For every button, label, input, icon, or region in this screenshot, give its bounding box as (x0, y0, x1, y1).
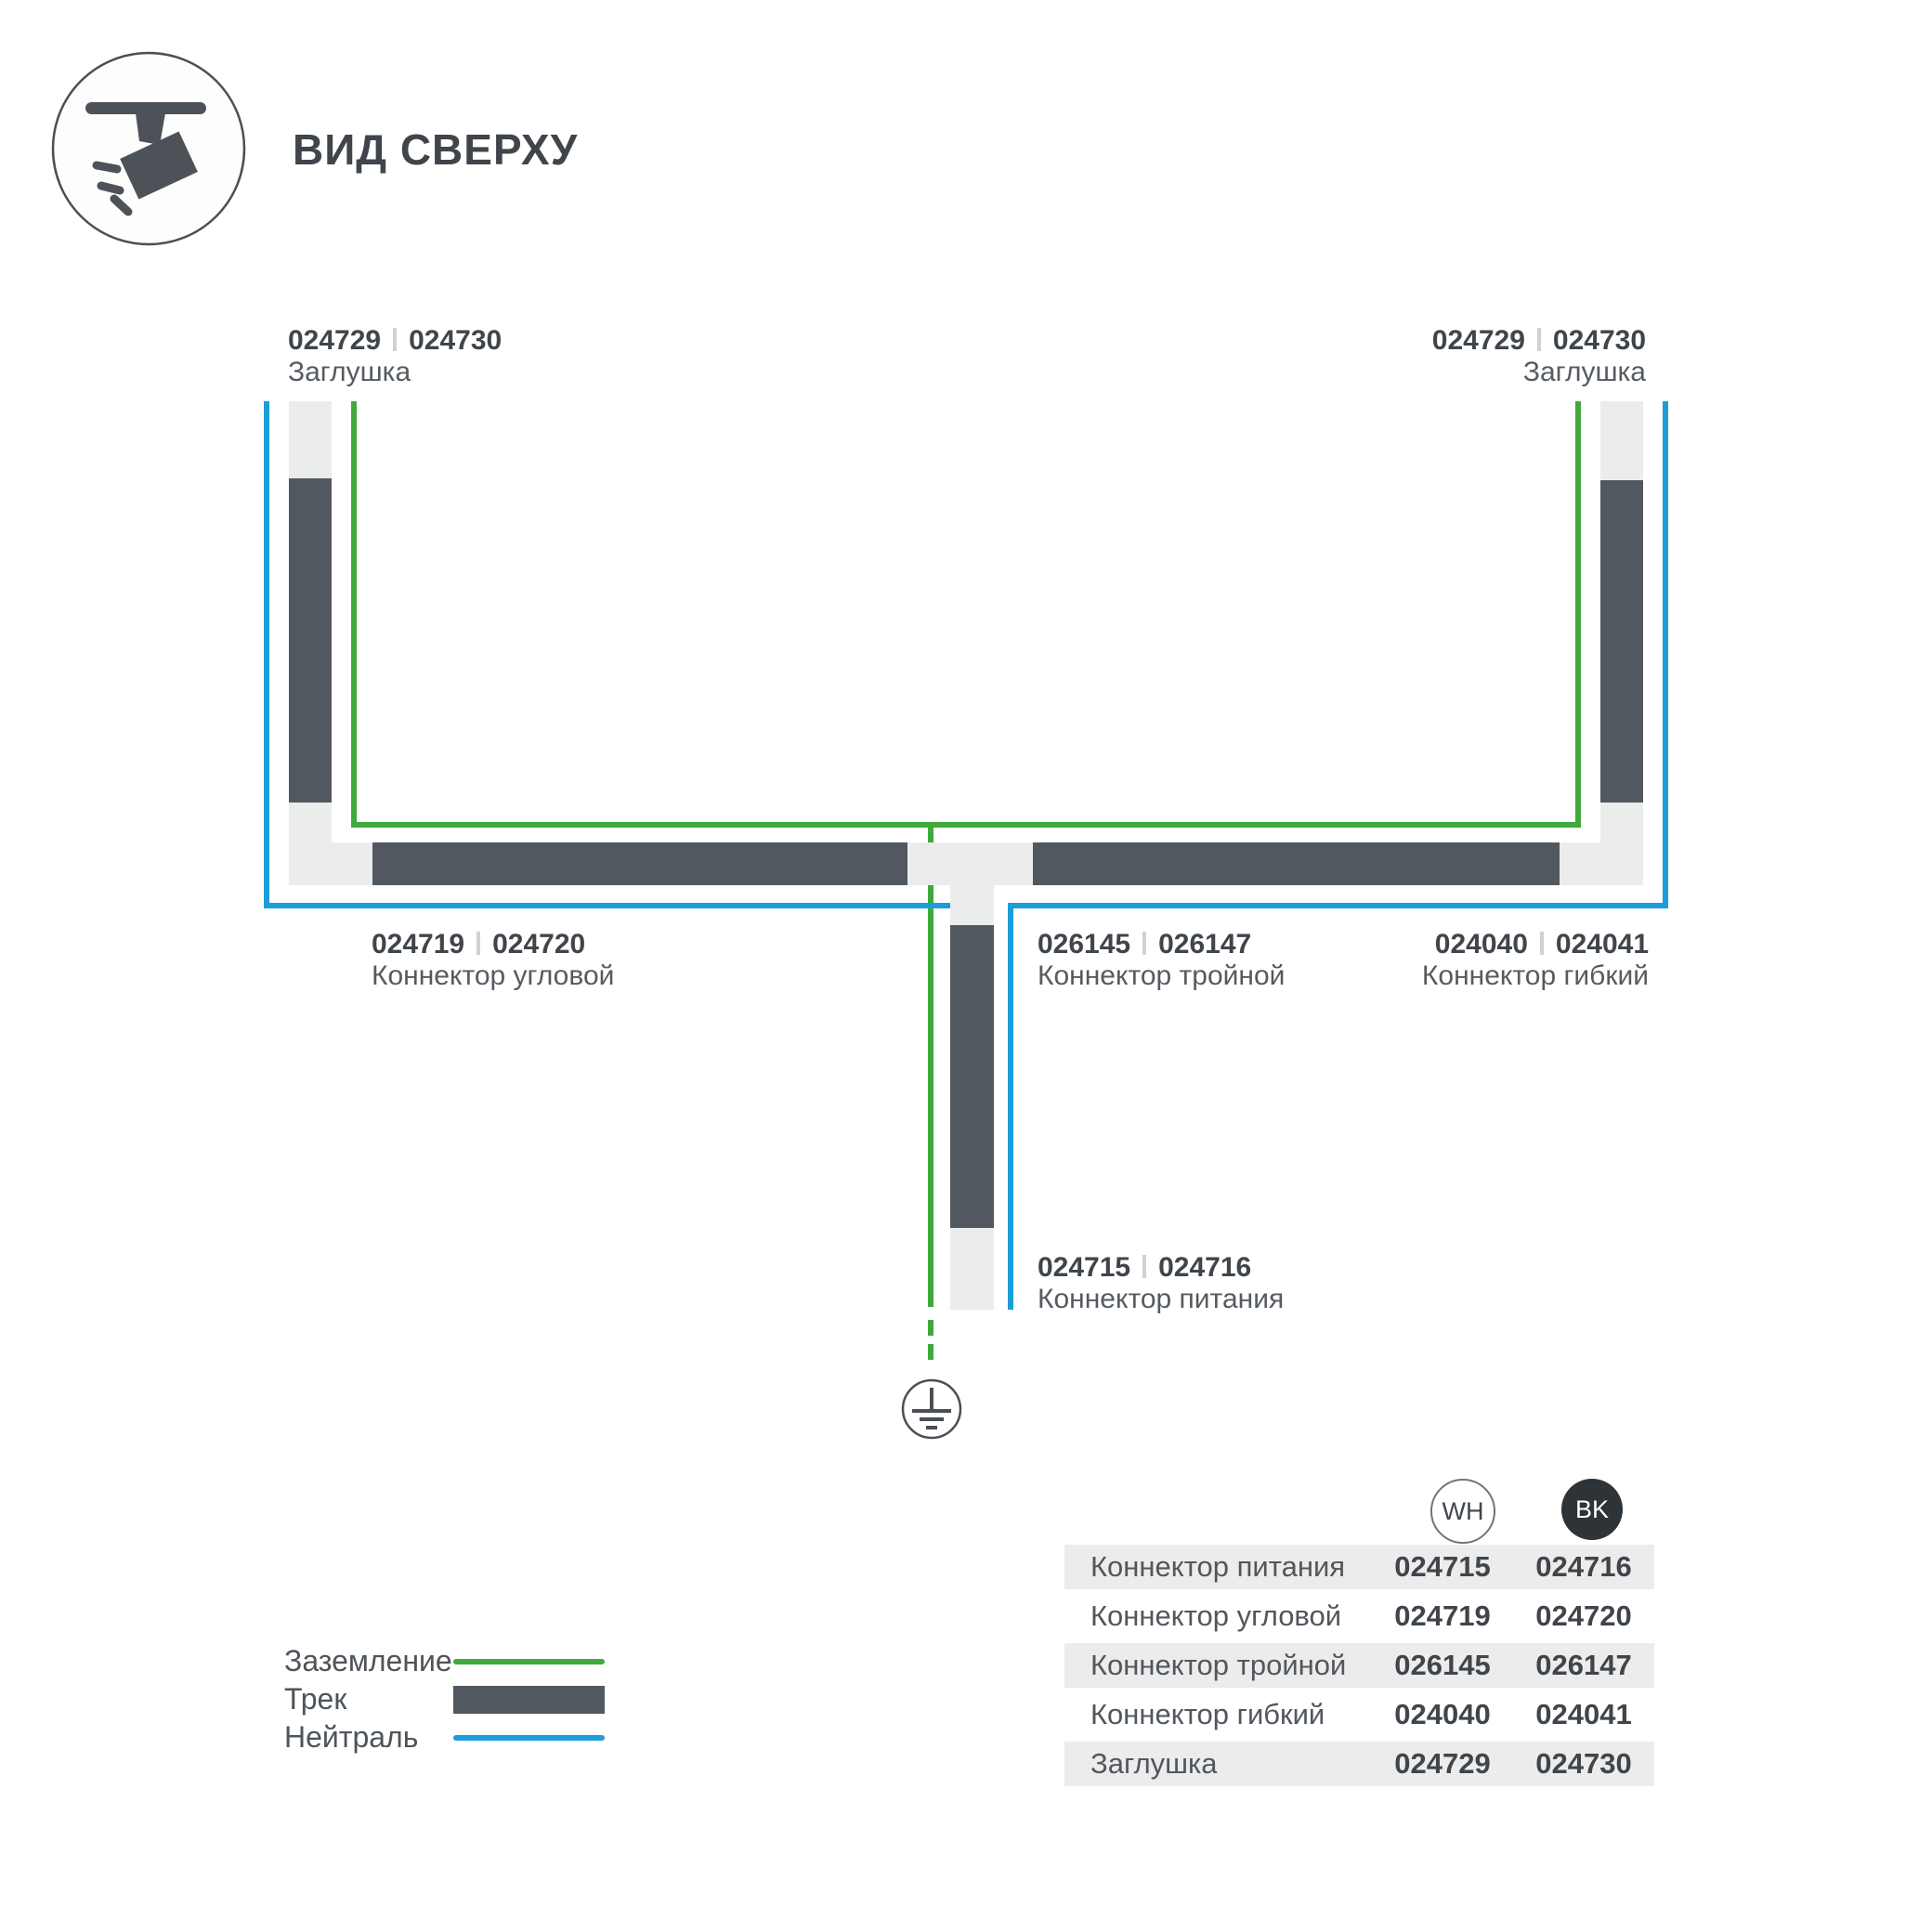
table-row-name: Коннектор угловой (1064, 1599, 1372, 1633)
table-row: Коннектор питания 024715 024716 (1064, 1545, 1654, 1589)
neutral-line-bottom-right (1008, 903, 1668, 908)
code-separator (1540, 932, 1544, 955)
table-row-wh-code: 024719 (1372, 1599, 1513, 1633)
legend-item-track: Трек (284, 1680, 605, 1718)
label-power-connector: 024715024716 Коннектор питания (1038, 1252, 1284, 1315)
legend-label-track: Трек (284, 1682, 453, 1717)
label-flex-connector: 024040024041 Коннектор гибкий (1422, 929, 1649, 992)
label-triple-connector: 026145026147 Коннектор тройной (1038, 929, 1285, 992)
ground-line-right (1575, 401, 1581, 828)
table-row-bk-code: 024041 (1513, 1698, 1654, 1731)
table-row: Коннектор тройной 026145 026147 (1064, 1643, 1654, 1688)
color-badge-white: WH (1430, 1479, 1495, 1544)
flex-connector-codes: 024040024041 (1422, 929, 1649, 960)
table-row-bk-code: 024720 (1513, 1599, 1654, 1633)
table-row-name: Заглушка (1064, 1747, 1372, 1781)
ground-line-left (351, 401, 357, 828)
code-separator (1537, 328, 1541, 351)
table-row: Коннектор гибкий 024040 024041 (1064, 1692, 1654, 1737)
power-connector-name: Коннектор питания (1038, 1284, 1284, 1315)
table-row-wh-code: 024729 (1372, 1747, 1513, 1781)
code-separator (1142, 932, 1146, 955)
table-row-bk-code: 026147 (1513, 1649, 1654, 1682)
label-endcap-right: 024729024730 Заглушка (1432, 325, 1646, 388)
neutral-line-right (1663, 401, 1668, 908)
table-row: Заглушка 024729 024730 (1064, 1742, 1654, 1786)
flex-connector-name: Коннектор гибкий (1422, 960, 1649, 992)
legend: Заземление Трек Нейтраль (284, 1642, 605, 1756)
legend-swatch-ground-line (453, 1659, 605, 1664)
legend-item-neutral: Нейтраль (284, 1718, 605, 1756)
table-row-wh-code: 024040 (1372, 1698, 1513, 1731)
neutral-line-left (264, 401, 269, 908)
ground-line-center-drop (928, 828, 933, 1307)
endcap-left-name: Заглушка (288, 357, 502, 388)
table-row-bk-code: 024716 (1513, 1550, 1654, 1584)
track-segment-horizontal-right (1033, 842, 1560, 885)
track-segment-left (289, 478, 332, 803)
legend-swatch-track-bar (453, 1686, 605, 1714)
table-row-name: Коннектор тройной (1064, 1649, 1372, 1682)
code-separator (393, 328, 397, 351)
corner-connector-name: Коннектор угловой (372, 960, 614, 992)
code-separator (476, 932, 480, 955)
triple-connector-name: Коннектор тройной (1038, 960, 1285, 992)
track-segment-horizontal-left (372, 842, 907, 885)
label-endcap-left: 024729024730 Заглушка (288, 325, 502, 388)
earth-ground-icon (900, 1377, 963, 1441)
legend-label-neutral: Нейтраль (284, 1720, 453, 1755)
track-segment-right (1600, 480, 1643, 803)
neutral-line-center-drop (1008, 903, 1013, 1310)
corner-connector-codes: 024719024720 (372, 929, 614, 960)
endcap-right-name: Заглушка (1432, 357, 1646, 388)
legend-swatch-neutral-line (453, 1735, 605, 1741)
table-row: Коннектор угловой 024719 024720 (1064, 1594, 1654, 1638)
table-row-bk-code: 024730 (1513, 1747, 1654, 1781)
table-row-name: Коннектор питания (1064, 1550, 1372, 1584)
table-row-name: Коннектор гибкий (1064, 1698, 1372, 1731)
legend-item-ground: Заземление (284, 1642, 605, 1680)
power-connector-codes: 024715024716 (1038, 1252, 1284, 1284)
triple-connector-codes: 026145026147 (1038, 929, 1285, 960)
track-segment-stem (950, 925, 994, 1228)
label-corner-connector: 024719024720 Коннектор угловой (372, 929, 614, 992)
color-badge-black: BK (1561, 1479, 1623, 1540)
table-row-wh-code: 026145 (1372, 1649, 1513, 1682)
ground-line-horizontal (351, 822, 1581, 828)
page-title: ВИД СВЕРХУ (293, 124, 578, 175)
neutral-line-bottom-left (264, 903, 950, 908)
endcap-left-codes: 024729024730 (288, 325, 502, 357)
legend-label-ground: Заземление (284, 1644, 453, 1678)
parts-table: Коннектор питания 024715 024716 Коннекто… (1064, 1545, 1654, 1791)
ground-line-dashed (928, 1320, 933, 1363)
top-view-diagram-page: ВИД СВЕРХУ 024729024730 Заглушка 0247290… (0, 0, 1932, 1932)
table-row-wh-code: 024715 (1372, 1550, 1513, 1584)
code-separator (1142, 1255, 1146, 1278)
endcap-right-codes: 024729024730 (1432, 325, 1646, 357)
track-spotlight-icon (50, 50, 247, 247)
